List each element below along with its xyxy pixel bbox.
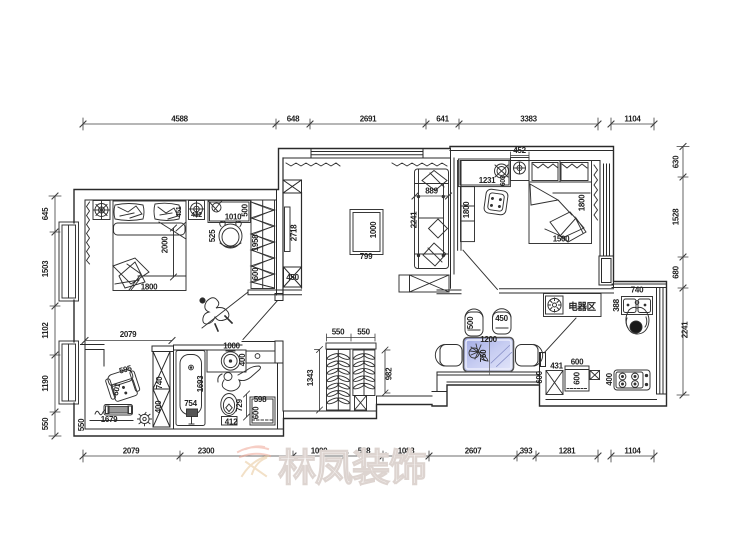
svg-text:450: 450 bbox=[286, 273, 299, 282]
svg-text:432: 432 bbox=[191, 212, 202, 219]
svg-text:1693: 1693 bbox=[196, 375, 205, 392]
svg-text:550: 550 bbox=[332, 328, 345, 337]
svg-text:603: 603 bbox=[500, 175, 507, 186]
svg-text:2079: 2079 bbox=[120, 330, 137, 339]
svg-text:740: 740 bbox=[155, 376, 164, 389]
svg-text:林凤装饰: 林凤装饰 bbox=[278, 448, 426, 490]
svg-text:729: 729 bbox=[235, 398, 244, 411]
svg-text:500: 500 bbox=[466, 316, 475, 329]
svg-text:799: 799 bbox=[360, 252, 373, 261]
svg-text:1958: 1958 bbox=[251, 234, 260, 251]
svg-text:641: 641 bbox=[436, 115, 449, 124]
svg-text:982: 982 bbox=[385, 367, 394, 380]
svg-text:550: 550 bbox=[77, 418, 86, 431]
svg-text:600: 600 bbox=[573, 371, 582, 384]
svg-text:388: 388 bbox=[612, 298, 621, 311]
svg-text:400: 400 bbox=[605, 372, 614, 385]
svg-text:412: 412 bbox=[225, 418, 238, 427]
svg-text:630: 630 bbox=[672, 155, 681, 168]
svg-text:451: 451 bbox=[176, 206, 183, 217]
svg-text:1503: 1503 bbox=[41, 260, 50, 277]
svg-text:431: 431 bbox=[550, 362, 563, 371]
svg-text:1800: 1800 bbox=[141, 283, 158, 292]
svg-text:2607: 2607 bbox=[465, 447, 482, 456]
svg-text:400: 400 bbox=[238, 353, 247, 366]
svg-text:1800: 1800 bbox=[462, 201, 471, 218]
svg-text:452: 452 bbox=[513, 146, 526, 155]
svg-text:595: 595 bbox=[118, 363, 133, 375]
svg-text:1102: 1102 bbox=[41, 322, 50, 339]
svg-text:600: 600 bbox=[252, 406, 261, 419]
svg-text:889: 889 bbox=[425, 187, 438, 196]
svg-text:2241: 2241 bbox=[410, 211, 419, 228]
svg-text:1679: 1679 bbox=[101, 415, 118, 424]
svg-text:2300: 2300 bbox=[198, 447, 215, 456]
svg-text:740: 740 bbox=[631, 286, 644, 295]
svg-text:2691: 2691 bbox=[360, 115, 377, 124]
svg-text:1800: 1800 bbox=[578, 194, 587, 211]
svg-text:500: 500 bbox=[241, 203, 250, 216]
svg-text:550: 550 bbox=[357, 328, 370, 337]
svg-text:750: 750 bbox=[479, 349, 488, 362]
svg-text:1104: 1104 bbox=[624, 115, 641, 124]
svg-text:645: 645 bbox=[41, 207, 50, 220]
svg-text:1104: 1104 bbox=[624, 447, 641, 456]
svg-text:393: 393 bbox=[520, 447, 533, 456]
svg-text:2000: 2000 bbox=[161, 236, 170, 253]
svg-text:598: 598 bbox=[254, 395, 267, 404]
svg-text:1500: 1500 bbox=[553, 235, 570, 244]
svg-text:550: 550 bbox=[41, 417, 50, 430]
svg-text:电器区: 电器区 bbox=[568, 301, 596, 313]
svg-text:525: 525 bbox=[208, 229, 217, 242]
svg-text:1231: 1231 bbox=[479, 176, 496, 185]
svg-text:2241: 2241 bbox=[681, 321, 690, 338]
svg-text:1281: 1281 bbox=[559, 447, 576, 456]
svg-text:1343: 1343 bbox=[306, 369, 315, 386]
svg-text:400: 400 bbox=[154, 400, 163, 413]
svg-text:600: 600 bbox=[251, 267, 260, 280]
svg-text:1190: 1190 bbox=[41, 375, 50, 392]
svg-text:450: 450 bbox=[495, 314, 508, 323]
svg-text:2718: 2718 bbox=[290, 224, 299, 241]
svg-text:1200: 1200 bbox=[480, 335, 497, 344]
svg-text:2079: 2079 bbox=[123, 447, 140, 456]
svg-text:3383: 3383 bbox=[520, 115, 537, 124]
svg-text:600: 600 bbox=[535, 370, 544, 383]
svg-text:754: 754 bbox=[184, 399, 197, 408]
svg-text:600: 600 bbox=[571, 358, 584, 367]
svg-text:4588: 4588 bbox=[171, 115, 188, 124]
svg-text:648: 648 bbox=[287, 115, 300, 124]
svg-text:1528: 1528 bbox=[672, 208, 681, 225]
svg-text:680: 680 bbox=[672, 265, 681, 278]
svg-text:1000: 1000 bbox=[369, 221, 378, 238]
svg-text:1000: 1000 bbox=[223, 342, 240, 351]
